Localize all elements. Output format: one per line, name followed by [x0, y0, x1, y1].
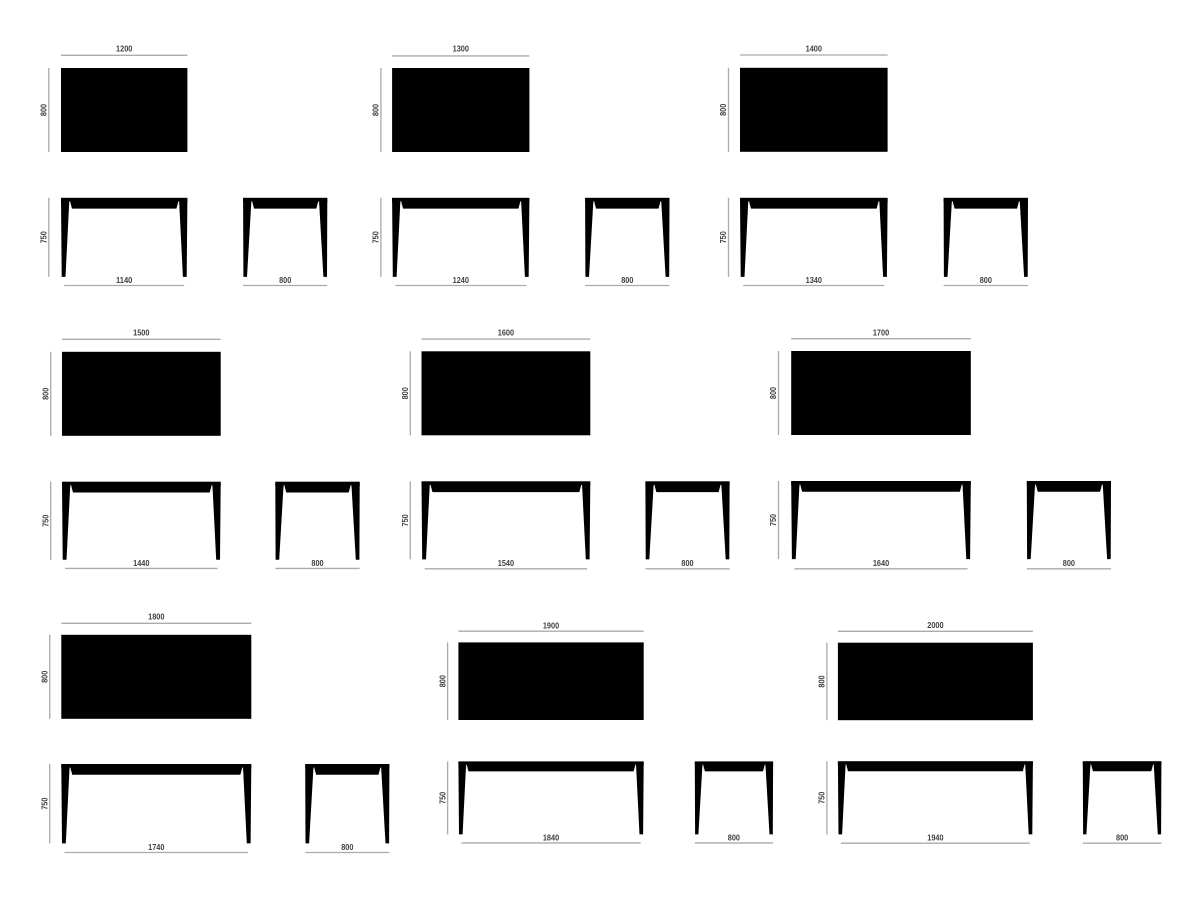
svg-text:800: 800: [400, 387, 410, 399]
svg-text:1800: 1800: [148, 612, 165, 622]
svg-text:750: 750: [718, 231, 728, 243]
svg-text:1400: 1400: [806, 44, 823, 54]
svg-text:750: 750: [768, 514, 778, 526]
svg-text:800: 800: [311, 558, 323, 568]
svg-text:750: 750: [39, 231, 49, 243]
svg-text:800: 800: [437, 675, 447, 687]
svg-text:800: 800: [768, 387, 778, 399]
svg-text:1140: 1140: [116, 275, 133, 285]
svg-text:1740: 1740: [148, 842, 165, 852]
svg-text:800: 800: [341, 842, 353, 852]
svg-text:800: 800: [279, 275, 291, 285]
svg-text:1840: 1840: [543, 832, 560, 842]
svg-text:800: 800: [817, 675, 827, 687]
svg-text:1940: 1940: [927, 833, 944, 843]
svg-text:750: 750: [817, 791, 827, 803]
svg-text:1300: 1300: [453, 44, 470, 54]
svg-text:800: 800: [1063, 558, 1075, 568]
svg-text:1540: 1540: [498, 558, 515, 568]
svg-text:1700: 1700: [873, 327, 890, 337]
svg-text:1600: 1600: [498, 328, 515, 338]
svg-text:800: 800: [39, 104, 49, 116]
svg-text:1200: 1200: [116, 44, 133, 54]
svg-text:800: 800: [621, 275, 633, 285]
svg-text:1500: 1500: [133, 328, 150, 338]
svg-text:1340: 1340: [806, 275, 823, 285]
svg-text:800: 800: [39, 670, 49, 682]
svg-text:800: 800: [718, 103, 728, 115]
svg-text:1240: 1240: [453, 275, 470, 285]
svg-text:2000: 2000: [927, 620, 944, 630]
svg-text:1440: 1440: [133, 558, 150, 568]
svg-text:800: 800: [681, 558, 693, 568]
svg-text:750: 750: [400, 514, 410, 526]
svg-text:800: 800: [1116, 833, 1128, 843]
svg-text:1640: 1640: [873, 558, 890, 568]
svg-text:800: 800: [40, 387, 50, 399]
svg-text:800: 800: [728, 832, 740, 842]
svg-text:750: 750: [39, 797, 49, 809]
svg-text:750: 750: [40, 514, 50, 526]
svg-text:800: 800: [980, 275, 992, 285]
svg-text:750: 750: [437, 792, 447, 804]
svg-text:750: 750: [371, 231, 381, 243]
svg-text:1900: 1900: [543, 620, 560, 630]
svg-text:800: 800: [371, 104, 381, 116]
